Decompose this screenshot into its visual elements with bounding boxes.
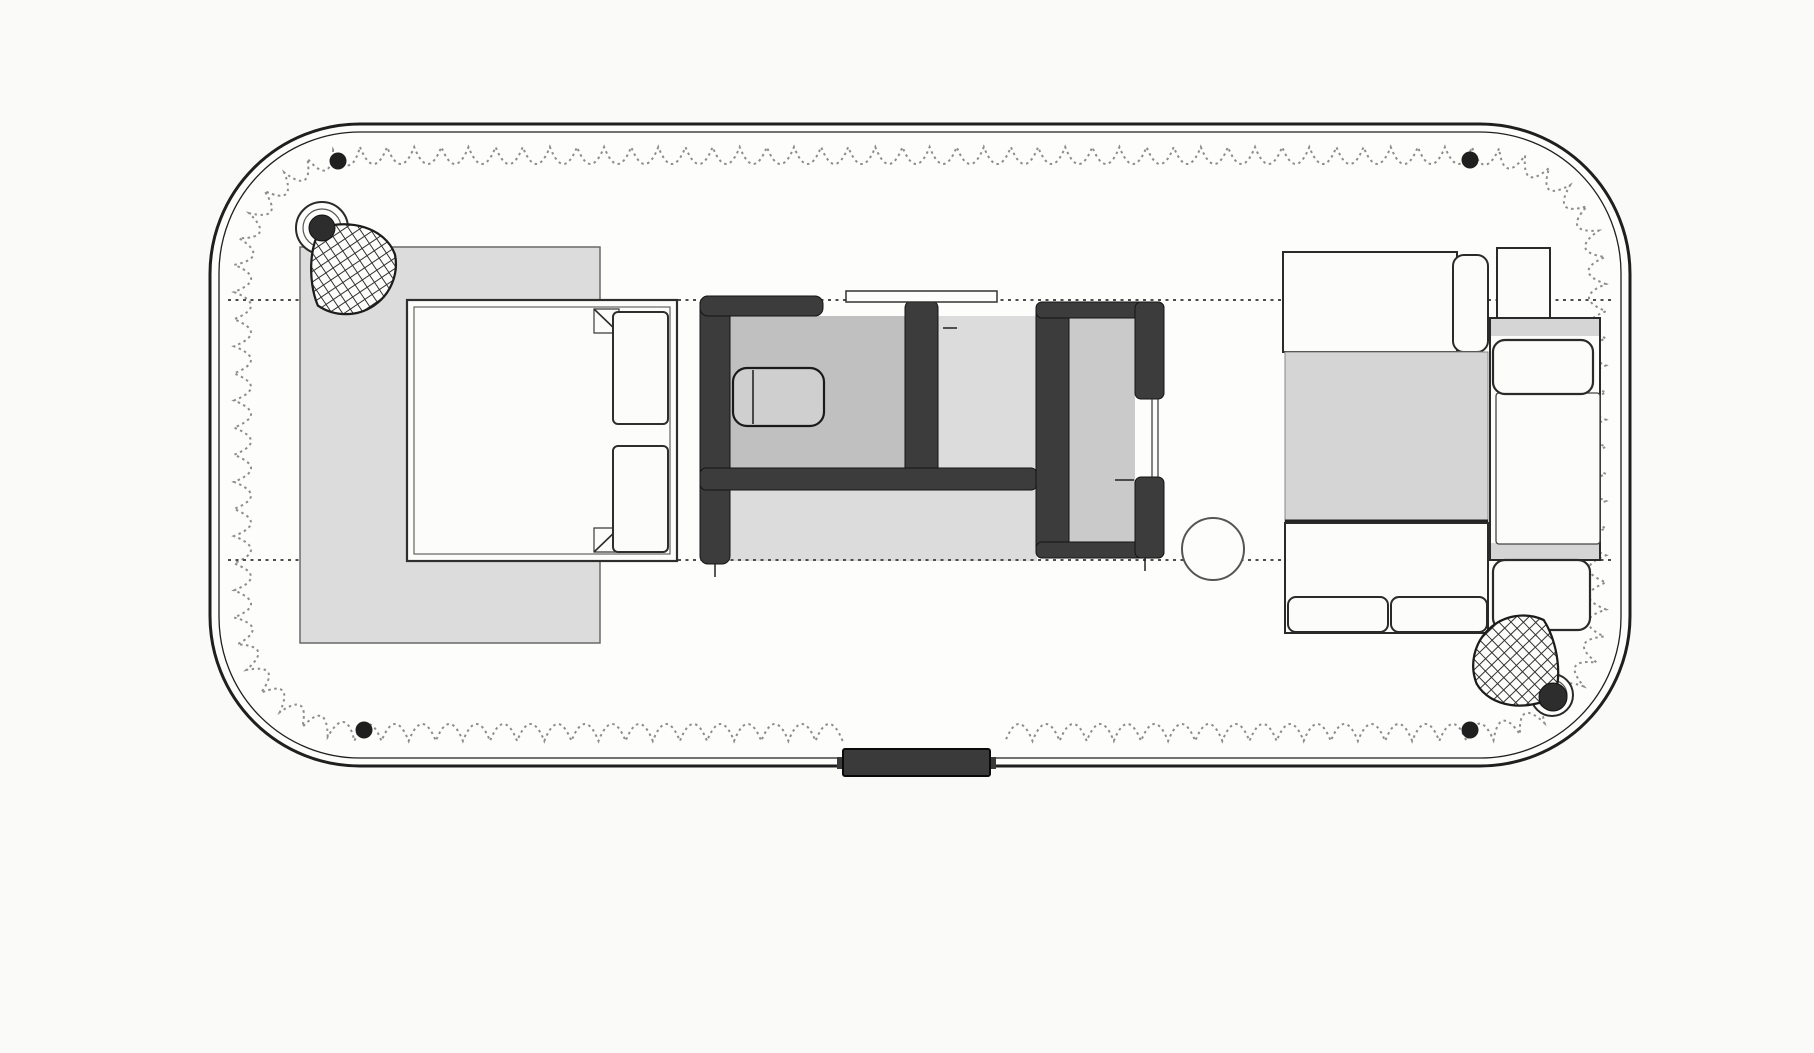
bed-pillow-bottom	[613, 446, 668, 552]
pedestal-table	[1182, 518, 1244, 580]
toilet	[733, 368, 824, 426]
dinette-top-bench-back-cushion	[1453, 255, 1488, 352]
bath-wall-mid	[700, 468, 1037, 490]
trailer-floor-plan	[0, 0, 1814, 1053]
rivet-dot-3	[356, 722, 373, 739]
sofa-cushion-top	[1493, 340, 1593, 394]
dinette-top-bench	[1283, 252, 1457, 352]
wardrobe-floor	[1069, 318, 1135, 543]
dinette-bottom-cushion-left	[1288, 597, 1388, 632]
rivet-dot-4	[1462, 722, 1479, 739]
wardrobe-wall-right-lower	[1135, 477, 1164, 558]
bed-reading-lamp-bulb-mount	[309, 215, 335, 241]
rivet-dot-1	[330, 153, 347, 170]
sofa-strip-top	[1491, 319, 1599, 336]
entry-step	[843, 749, 990, 776]
bed-pillow-top	[613, 312, 668, 424]
wardrobe-wall-left	[1036, 302, 1069, 558]
sofa-seat	[1496, 393, 1600, 544]
bath-sliding-door-panel	[846, 291, 997, 302]
bath-wall-left	[700, 296, 730, 564]
side-table	[1497, 248, 1550, 318]
bath-wall-right	[905, 300, 938, 490]
rivet-dot-2	[1462, 152, 1479, 169]
sofa-strip-bottom	[1491, 543, 1599, 559]
bath-wall-top	[700, 296, 823, 316]
sofa-reading-lamp-bulb-mount	[1539, 683, 1567, 711]
wardrobe-wall-right-upper	[1135, 302, 1164, 399]
dinette-table	[1285, 352, 1488, 523]
dinette-bottom-cushion-right	[1391, 597, 1487, 632]
floor-plan-page	[0, 0, 1814, 1053]
